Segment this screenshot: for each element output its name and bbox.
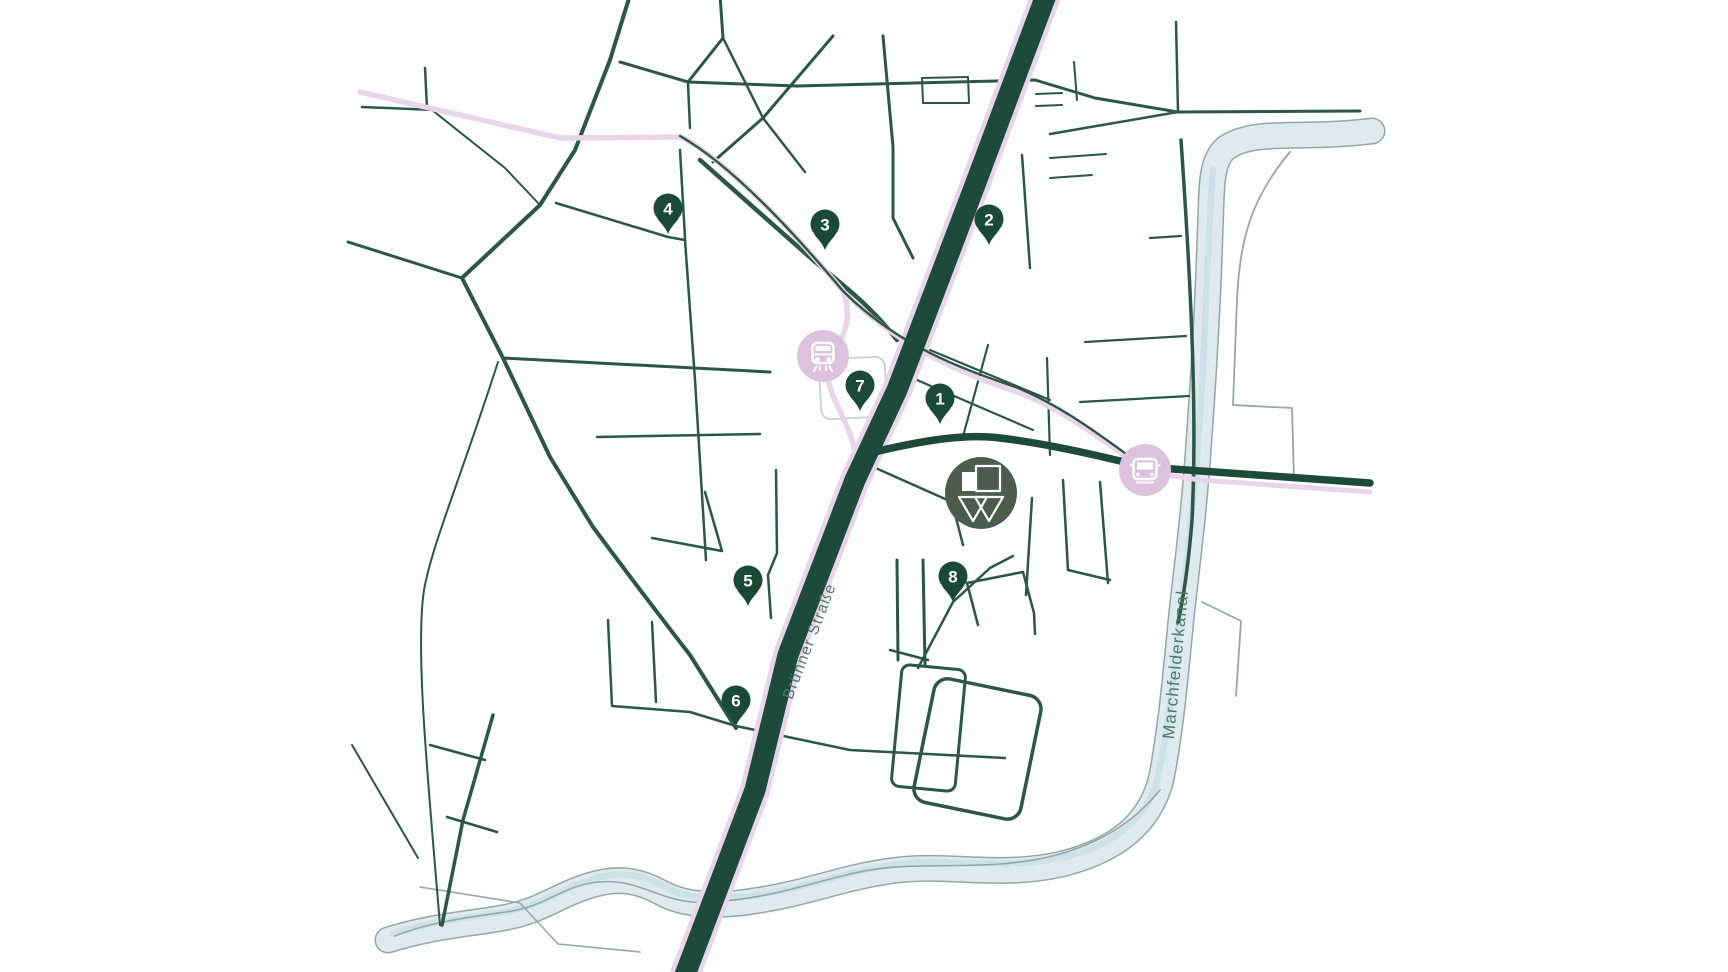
canal-waterway — [388, 131, 1372, 952]
pin-number-label: 4 — [663, 200, 673, 219]
tram-station-icon[interactable] — [797, 330, 849, 382]
map-pin-8[interactable]: 8 — [939, 562, 968, 602]
map-pin-4[interactable]: 4 — [654, 194, 683, 234]
project-logo-marker[interactable] — [945, 457, 1017, 529]
pin-number-label: 8 — [948, 568, 957, 587]
map-pin-3[interactable]: 3 — [811, 210, 840, 250]
pin-number-label: 2 — [984, 211, 993, 230]
logo-building-icon — [962, 472, 976, 491]
map-pin-2[interactable]: 2 — [975, 205, 1004, 245]
pin-number-label: 5 — [743, 572, 752, 591]
map-pin-6[interactable]: 6 — [722, 686, 751, 726]
map-pin-5[interactable]: 5 — [734, 566, 763, 606]
map-canvas: Brünner Straße Marchfelderkanal 12345678 — [0, 0, 1728, 972]
map-pin-1[interactable]: 1 — [926, 384, 955, 424]
pin-number-label: 7 — [855, 377, 864, 396]
pin-number-label: 3 — [820, 216, 829, 235]
map-labels: Brünner Straße Marchfelderkanal — [780, 581, 1192, 740]
bus-station-icon[interactable] — [1119, 444, 1171, 496]
road-along-tram — [680, 136, 1143, 466]
map-pin-7[interactable]: 7 — [846, 371, 875, 411]
logo-layer — [945, 457, 1017, 529]
map-stage: Brünner Straße Marchfelderkanal 12345678 — [0, 0, 1728, 972]
pin-number-label: 6 — [731, 692, 740, 711]
pin-number-label: 1 — [935, 390, 944, 409]
